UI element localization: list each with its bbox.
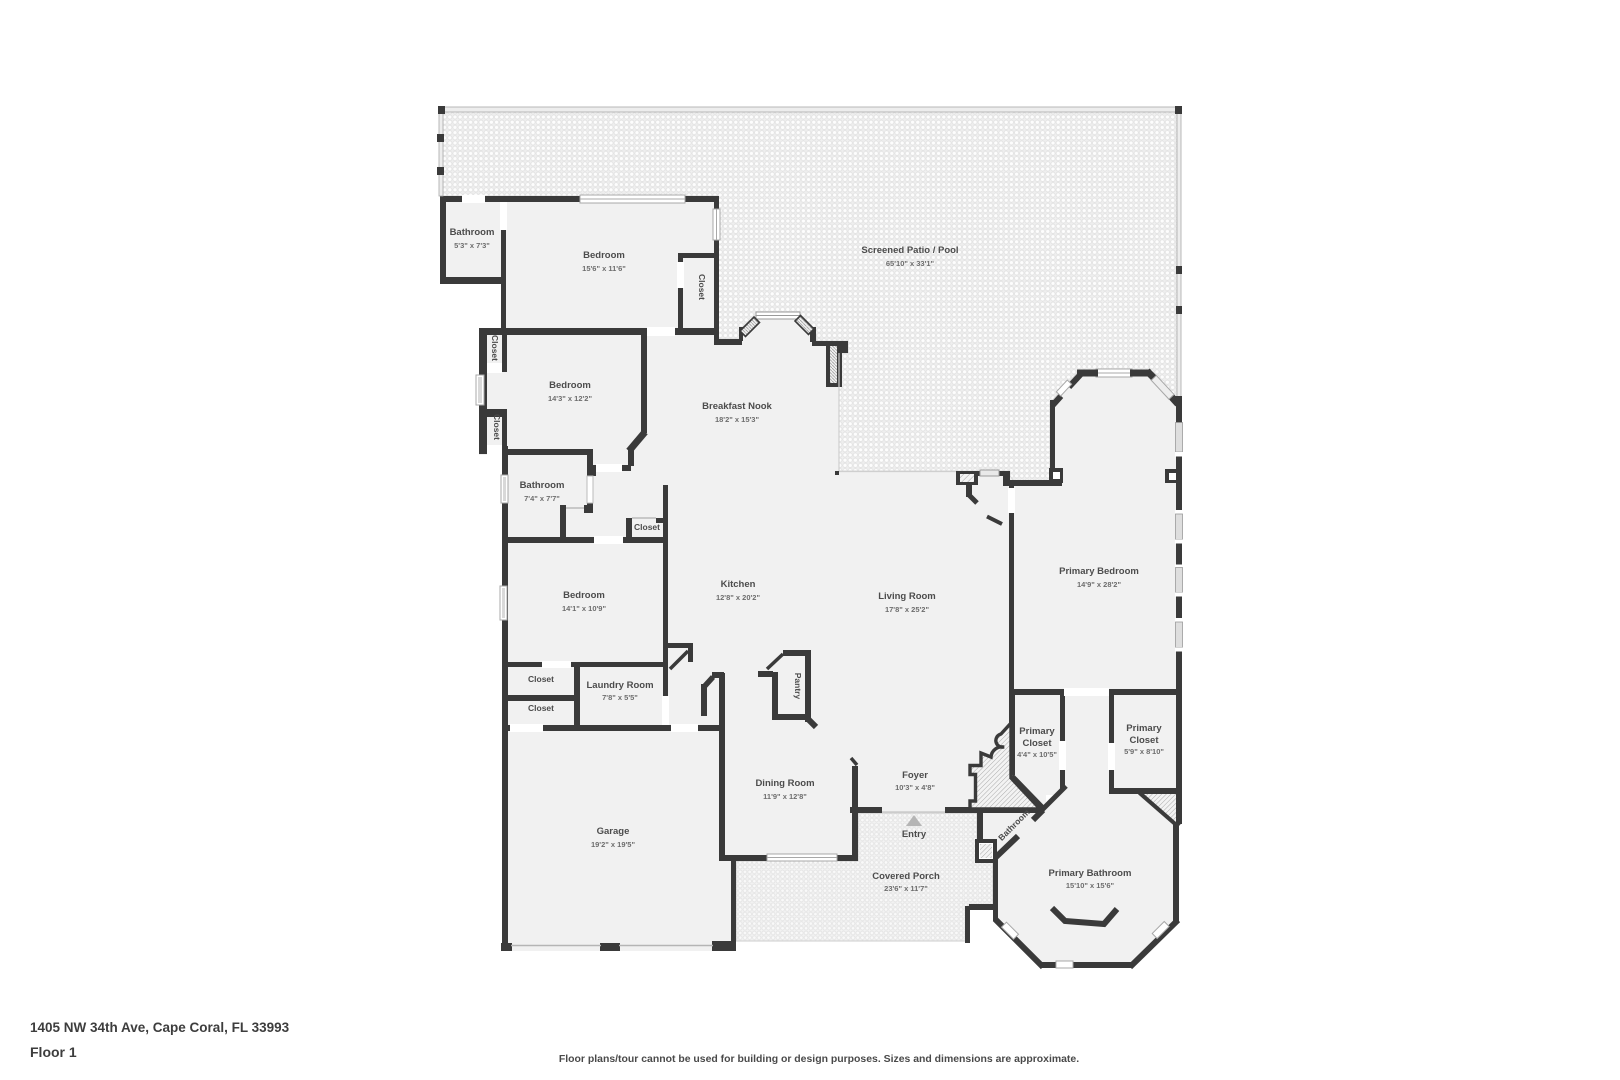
svg-text:Bedroom: Bedroom [549, 380, 591, 391]
svg-text:15'10" x 15'6": 15'10" x 15'6" [1066, 881, 1115, 890]
svg-text:23'6" x 11'7": 23'6" x 11'7" [884, 884, 928, 893]
svg-text:Floor plans/tour cannot be use: Floor plans/tour cannot be used for buil… [559, 1054, 1079, 1065]
svg-text:Primary Bathroom: Primary Bathroom [1049, 868, 1132, 879]
svg-text:Laundry Room: Laundry Room [586, 680, 653, 691]
svg-text:Primary Bedroom: Primary Bedroom [1059, 566, 1139, 577]
svg-text:Closet: Closet [528, 674, 554, 684]
svg-text:Foyer: Foyer [902, 770, 928, 781]
svg-text:Bathroom: Bathroom [520, 480, 565, 491]
svg-text:Closet: Closet [490, 335, 500, 361]
svg-text:12'8" x 20'2": 12'8" x 20'2" [716, 593, 760, 602]
svg-text:15'6" x 11'6": 15'6" x 11'6" [582, 264, 626, 273]
svg-text:7'8" x 5'5": 7'8" x 5'5" [602, 693, 638, 702]
svg-text:Closet: Closet [528, 703, 554, 713]
svg-text:Living Room: Living Room [878, 591, 936, 602]
svg-text:14'1" x 10'9": 14'1" x 10'9" [562, 604, 606, 613]
svg-text:Entry: Entry [902, 829, 927, 840]
svg-text:17'8" x 25'2": 17'8" x 25'2" [885, 605, 929, 614]
svg-text:Closet: Closet [492, 414, 502, 440]
svg-text:14'9" x 28'2": 14'9" x 28'2" [1077, 580, 1121, 589]
svg-text:10'3" x 4'8": 10'3" x 4'8" [895, 783, 935, 792]
svg-text:Covered Porch: Covered Porch [872, 871, 940, 882]
svg-text:Screened Patio / Pool: Screened Patio / Pool [861, 245, 958, 256]
svg-text:Bedroom: Bedroom [583, 250, 625, 261]
svg-text:18'2" x 15'3": 18'2" x 15'3" [715, 415, 759, 424]
svg-text:Floor 1: Floor 1 [30, 1044, 77, 1060]
svg-text:1405 NW 34th Ave, Cape Coral,: 1405 NW 34th Ave, Cape Coral, FL 33993 [30, 1020, 290, 1035]
svg-text:Closet: Closet [634, 522, 660, 532]
svg-text:Garage: Garage [597, 826, 630, 837]
svg-text:Bathroom: Bathroom [450, 227, 495, 238]
svg-text:Kitchen: Kitchen [721, 579, 756, 590]
svg-text:65'10" x 33'1": 65'10" x 33'1" [886, 259, 935, 268]
svg-text:4'4" x 10'5": 4'4" x 10'5" [1017, 750, 1057, 759]
svg-text:Primary: Primary [1126, 723, 1162, 734]
svg-text:5'9" x 8'10": 5'9" x 8'10" [1124, 747, 1164, 756]
svg-text:Pantry: Pantry [793, 673, 803, 700]
svg-text:Bedroom: Bedroom [563, 590, 605, 601]
svg-text:7'4" x 7'7": 7'4" x 7'7" [524, 494, 560, 503]
svg-text:Closet: Closet [1022, 738, 1052, 749]
svg-text:Dining Room: Dining Room [755, 778, 814, 789]
svg-text:14'3" x 12'2": 14'3" x 12'2" [548, 394, 592, 403]
svg-text:Breakfast Nook: Breakfast Nook [702, 401, 772, 412]
svg-text:Primary: Primary [1019, 726, 1055, 737]
svg-text:5'3" x 7'3": 5'3" x 7'3" [454, 241, 490, 250]
svg-text:19'2" x 19'5": 19'2" x 19'5" [591, 840, 635, 849]
svg-text:Closet: Closet [697, 274, 707, 300]
svg-text:11'9" x 12'8": 11'9" x 12'8" [763, 792, 807, 801]
svg-text:Closet: Closet [1129, 735, 1159, 746]
